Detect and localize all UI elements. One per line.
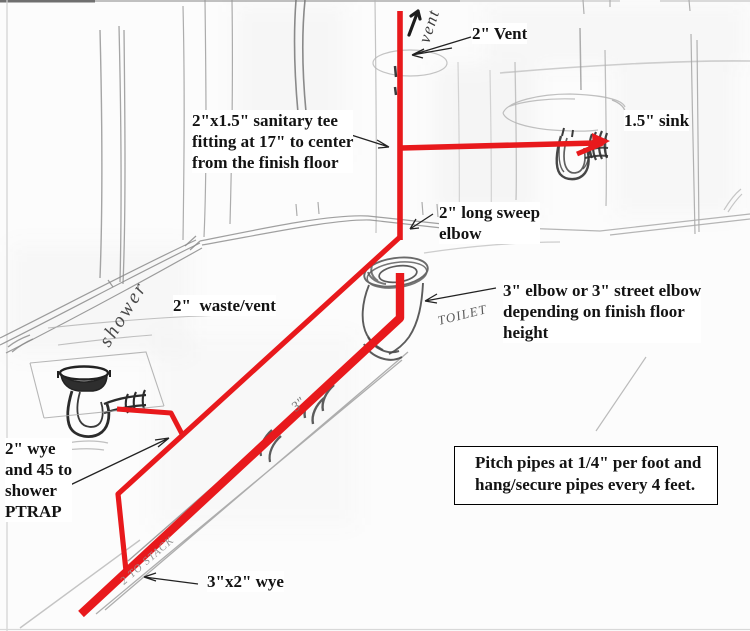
svg-text:TOILET: TOILET <box>436 301 488 328</box>
